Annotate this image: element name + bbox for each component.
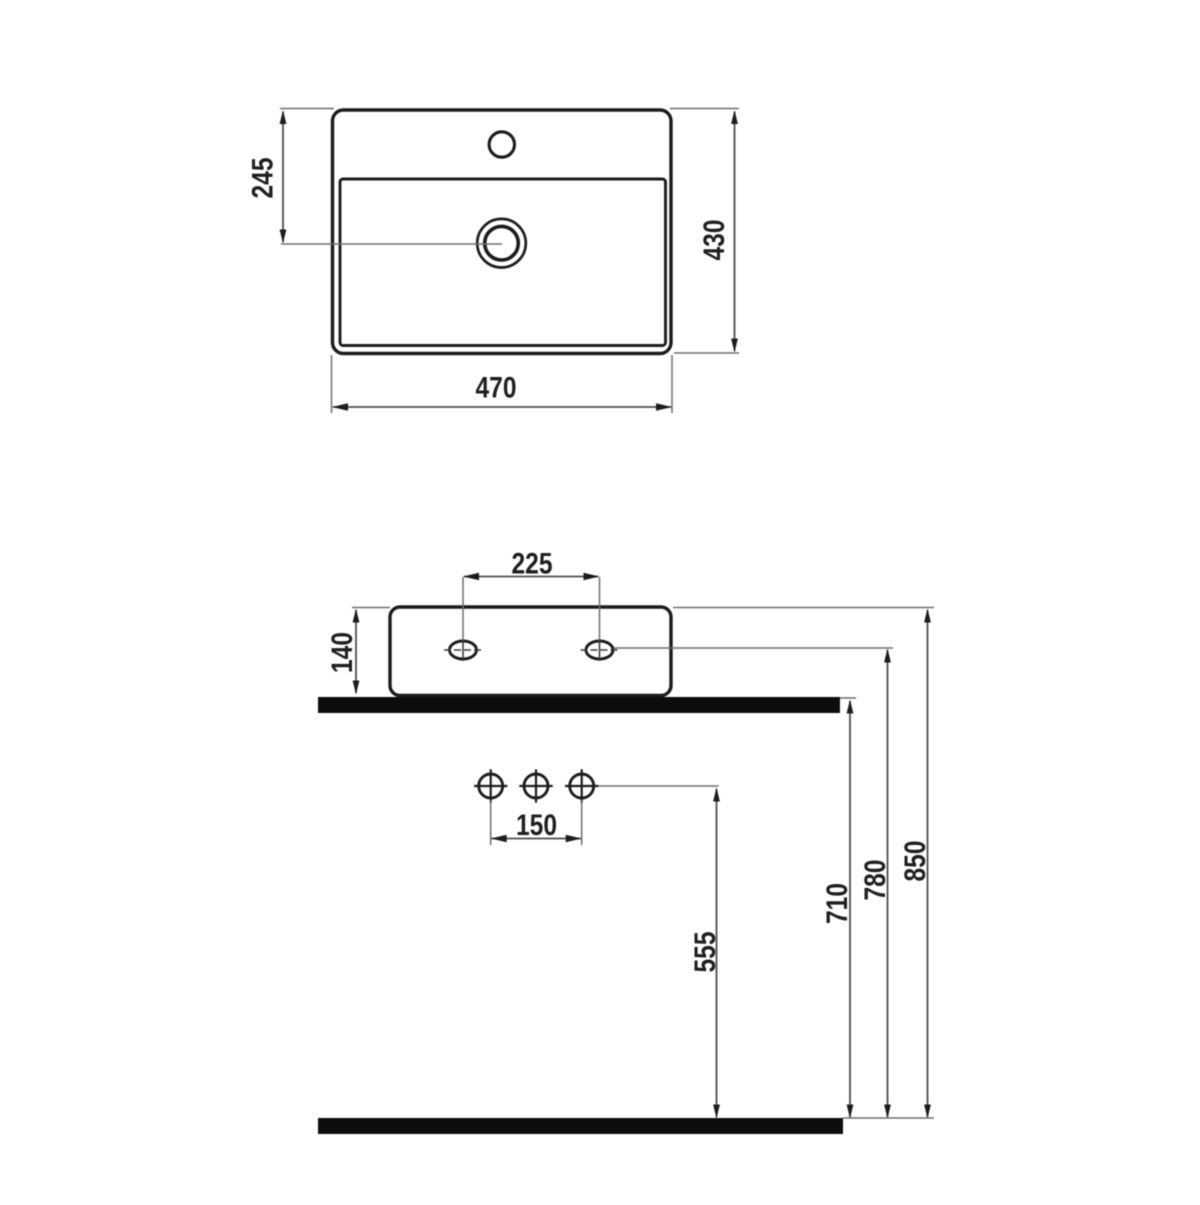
svg-text:140: 140 (326, 632, 359, 673)
svg-text:430: 430 (698, 220, 731, 261)
svg-text:245: 245 (247, 158, 280, 199)
svg-text:150: 150 (516, 809, 557, 842)
svg-text:470: 470 (476, 372, 517, 405)
svg-text:850: 850 (899, 841, 932, 882)
svg-text:780: 780 (859, 860, 892, 901)
svg-text:225: 225 (512, 548, 553, 581)
svg-text:710: 710 (821, 883, 854, 924)
svg-text:555: 555 (689, 932, 722, 973)
